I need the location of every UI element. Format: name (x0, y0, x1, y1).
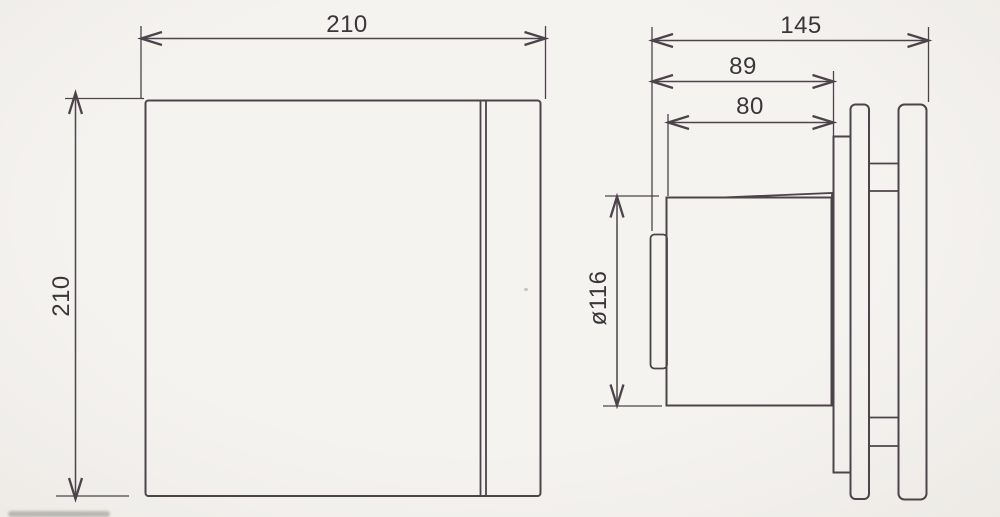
scanned-technical-drawing: 210 210 145 89 80 ø116 (0, 0, 1000, 517)
inner-frame-outline (851, 105, 870, 500)
front-panel-outline (899, 105, 927, 500)
dim-label-front-width: 210 (307, 12, 387, 38)
dim-label-body-depth: 80 (710, 94, 790, 120)
dim-label-front-height: 210 (49, 256, 75, 336)
dim-label-depth-to-plate: 89 (703, 54, 783, 80)
rear-bulge-outline (651, 235, 668, 369)
dim-label-depth-total: 145 (761, 13, 841, 39)
body-depth-dimension (668, 114, 834, 196)
mounting-plate-outline (834, 137, 851, 473)
drawing-geometry (0, 0, 1000, 517)
side-view (651, 105, 927, 500)
front-view (146, 101, 541, 497)
scan-speckle-artifact (524, 288, 528, 291)
total-depth-dimension (652, 27, 929, 231)
fan-body-outline (667, 198, 832, 406)
dim-label-duct-diameter: ø116 (586, 253, 612, 343)
scan-smudge-artifact (8, 511, 110, 517)
